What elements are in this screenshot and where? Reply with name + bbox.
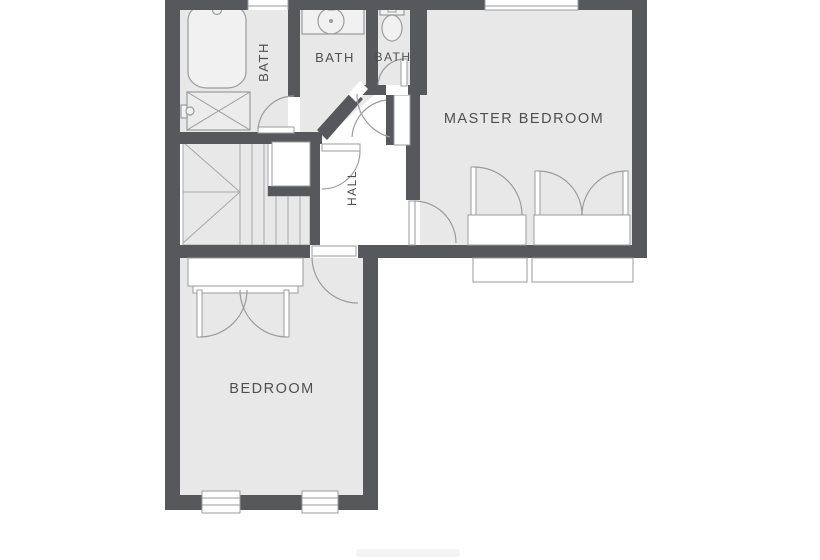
closet-by-stairs	[272, 142, 310, 186]
wall-bedroom-bottom	[165, 495, 378, 510]
wall-stairs-closet-bottom	[268, 186, 310, 196]
wall-stairs-closet-right	[310, 140, 320, 245]
label-hall: HALL	[345, 170, 359, 206]
closet-bedroom	[188, 258, 303, 293]
label-bath-left: BATH	[256, 42, 271, 82]
window-bedroom-left	[202, 491, 240, 513]
label-bedroom: BEDROOM	[229, 381, 314, 397]
window-bedroom-right	[302, 491, 338, 513]
wall-hall-stub	[386, 95, 394, 145]
label-bath-small: BATH	[374, 50, 411, 64]
wall-bath-middle-divider	[366, 0, 378, 88]
bathtub-icon	[188, 0, 246, 88]
closet-hall	[394, 95, 410, 145]
wall-bedroom-right	[363, 245, 378, 510]
window-master-top	[485, 0, 578, 10]
label-master-bedroom: MASTER BEDROOM	[444, 111, 604, 127]
wall-right-master	[632, 0, 647, 258]
wall-bath-left-divider	[288, 0, 300, 97]
floor-plan: BATH BATH BATH MASTER BEDROOM HALL BEDRO…	[0, 0, 820, 560]
wall-mid-horizontal	[165, 245, 647, 258]
cropped-watermark	[356, 549, 460, 557]
shower-icon	[187, 92, 250, 130]
label-bath-middle: BATH	[315, 50, 355, 65]
toilet-icon	[380, 5, 404, 41]
wall-bath-small-right	[410, 0, 427, 95]
window-top-left	[248, 0, 288, 10]
